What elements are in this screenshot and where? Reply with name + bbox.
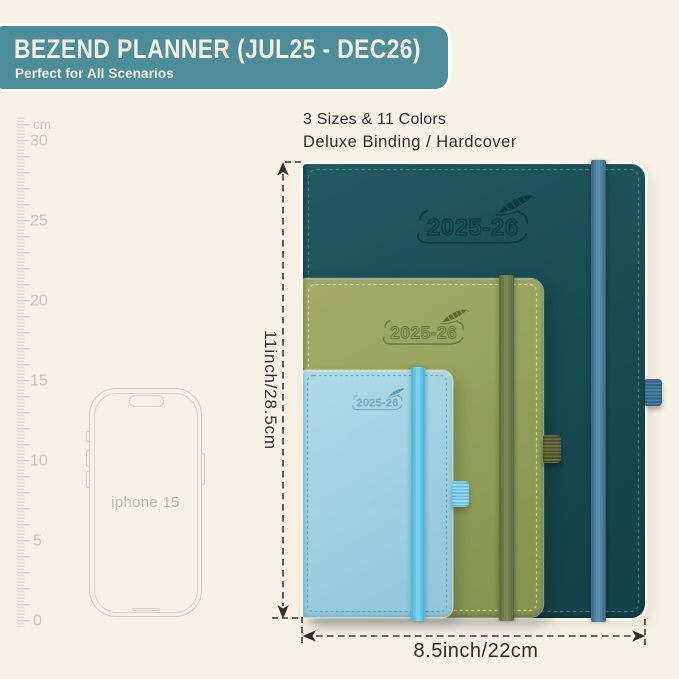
svg-text:8.5inch/22cm: 8.5inch/22cm [414, 640, 539, 662]
svg-text:11inch/28.5cm: 11inch/28.5cm [261, 330, 280, 450]
